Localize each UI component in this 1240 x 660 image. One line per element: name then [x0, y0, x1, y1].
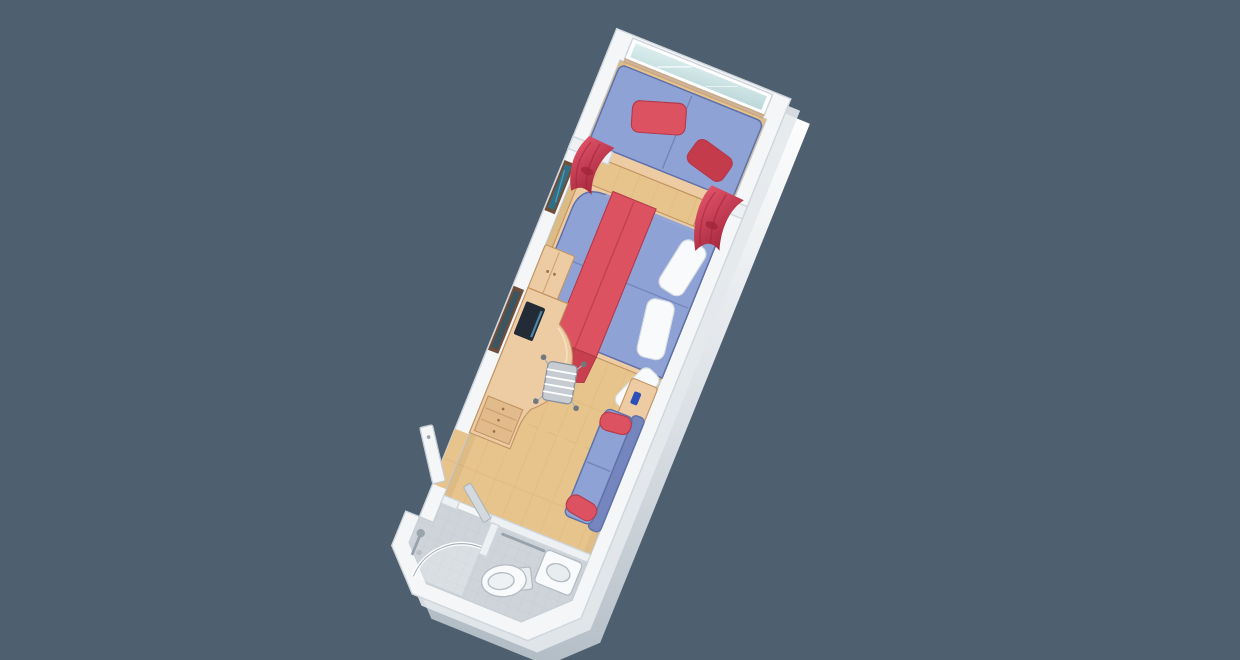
cabin-floorplan-svg: [0, 0, 1240, 660]
chair-seat: [542, 361, 578, 405]
daybed-pillow-1: [631, 100, 687, 135]
floorplan-image: [0, 0, 1240, 660]
